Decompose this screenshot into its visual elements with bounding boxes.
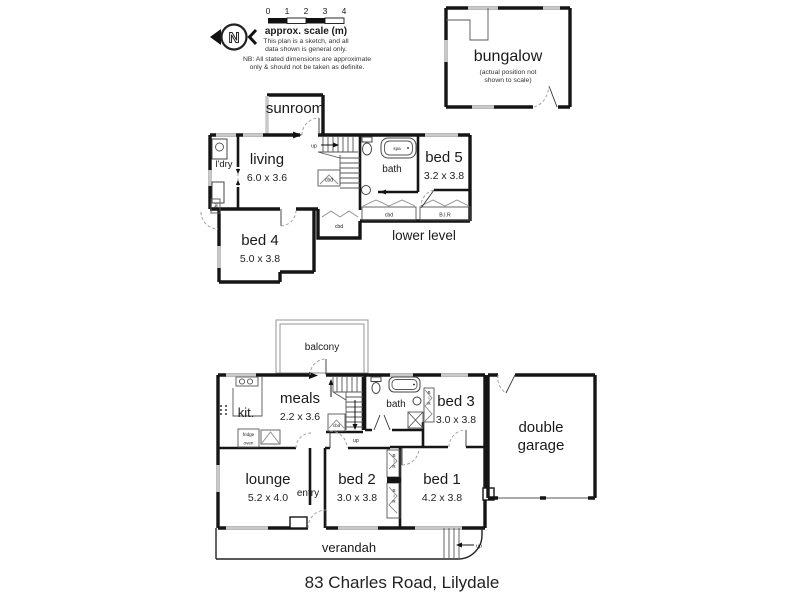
scale-tick-2: 2 [304, 6, 309, 16]
spa-label: spa [393, 146, 401, 151]
balcony-label: balcony [305, 342, 339, 353]
bed4-label: bed 4 [241, 232, 279, 249]
lounge-dims: 5.2 x 4.0 [248, 492, 288, 504]
north-letter: N [229, 30, 240, 47]
ground-cbd-label: cbd [333, 423, 341, 428]
bed3-label: bed 3 [437, 393, 475, 410]
bed2-dims: 3.0 x 3.8 [337, 492, 377, 504]
entry-label: entry [297, 488, 319, 499]
upper-laundry-opening [236, 168, 240, 186]
bed2-label: bed 2 [338, 471, 376, 488]
sunroom-label: sunroom [266, 100, 324, 117]
bed2-bir-label: BIR [392, 453, 396, 469]
lower-level-caption: lower level [392, 228, 456, 243]
floorplan-canvas: N 0 1 2 3 4 approx. scale (m) This plan … [0, 0, 800, 600]
fridge-label: fridge [243, 432, 255, 437]
laundry-cbd-label: cbd [214, 202, 219, 210]
bed1-bir-label: BIR [392, 488, 396, 504]
ground-bath-label: bath [386, 399, 405, 410]
meals-dims: 2.2 x 3.6 [280, 411, 320, 423]
bed3-bir-label: BIR [427, 390, 431, 406]
oven-label: oven [244, 441, 254, 446]
page-title: 83 Charles Road, Lilydale [305, 573, 500, 592]
lounge-label: lounge [245, 471, 290, 488]
bed1-dims: 4.2 x 3.8 [422, 492, 462, 504]
ground-stairs: up cbd [328, 377, 363, 444]
bed5-dims: 3.2 x 3.8 [424, 170, 464, 182]
ground-up-label: up [353, 438, 359, 444]
scale-tick-4: 4 [342, 6, 347, 16]
upper-up-label: up [311, 144, 317, 150]
bungalow-note-2: shown to scale) [484, 77, 531, 84]
nb-line-2: only & should not be taken as definite. [250, 64, 365, 71]
stair-cbd-label: cbd [325, 178, 333, 184]
bed3-dims: 3.0 x 3.8 [436, 414, 476, 426]
living-dims: 6.0 x 3.6 [247, 172, 287, 184]
upper-laundry-fixtures: cbd [211, 139, 227, 213]
laundry-label: l'dry [215, 159, 232, 170]
bungalow-note-1: (actual position not [479, 69, 536, 76]
scale-tick-3: 3 [323, 6, 328, 16]
nb-line-1: NB: All stated dimensions are approximat… [243, 56, 371, 63]
scale-caption: approx. scale (m) [265, 26, 347, 37]
understairs-cbd-label: cbd [335, 224, 343, 230]
bed1-label: bed 1 [423, 471, 461, 488]
garage-label-line2: garage [518, 437, 565, 454]
kitchen-label: kit. [238, 405, 255, 420]
disclaimer-line-1: This plan is a sketch, and all [263, 38, 349, 45]
scale-bar: 0 1 2 3 4 [266, 6, 347, 24]
bed2-bed1-robes: BIR BIR [387, 450, 400, 518]
floorplan-page: N 0 1 2 3 4 approx. scale (m) This plan … [0, 0, 800, 600]
living-label: living [250, 151, 284, 168]
disclaimer-line-2: data shown is general only. [265, 46, 347, 53]
verandah-label: verandah [322, 540, 376, 555]
north-arrow-icon: N [210, 25, 256, 50]
upper-bath-label: bath [382, 164, 401, 175]
bed5-label: bed 5 [425, 149, 463, 166]
verandah-up-label: up [476, 544, 482, 550]
scale-tick-0: 0 [266, 6, 271, 16]
scale-tick-1: 1 [285, 6, 290, 16]
bir-label: B.I.R [439, 213, 451, 219]
meals-label: meals [280, 390, 320, 407]
robe-cbd-label: cbd [385, 213, 393, 219]
garage-label-line1: double [518, 419, 563, 436]
bed4-dims: 5.0 x 3.8 [240, 253, 280, 265]
bungalow-label: bungalow [474, 48, 543, 65]
